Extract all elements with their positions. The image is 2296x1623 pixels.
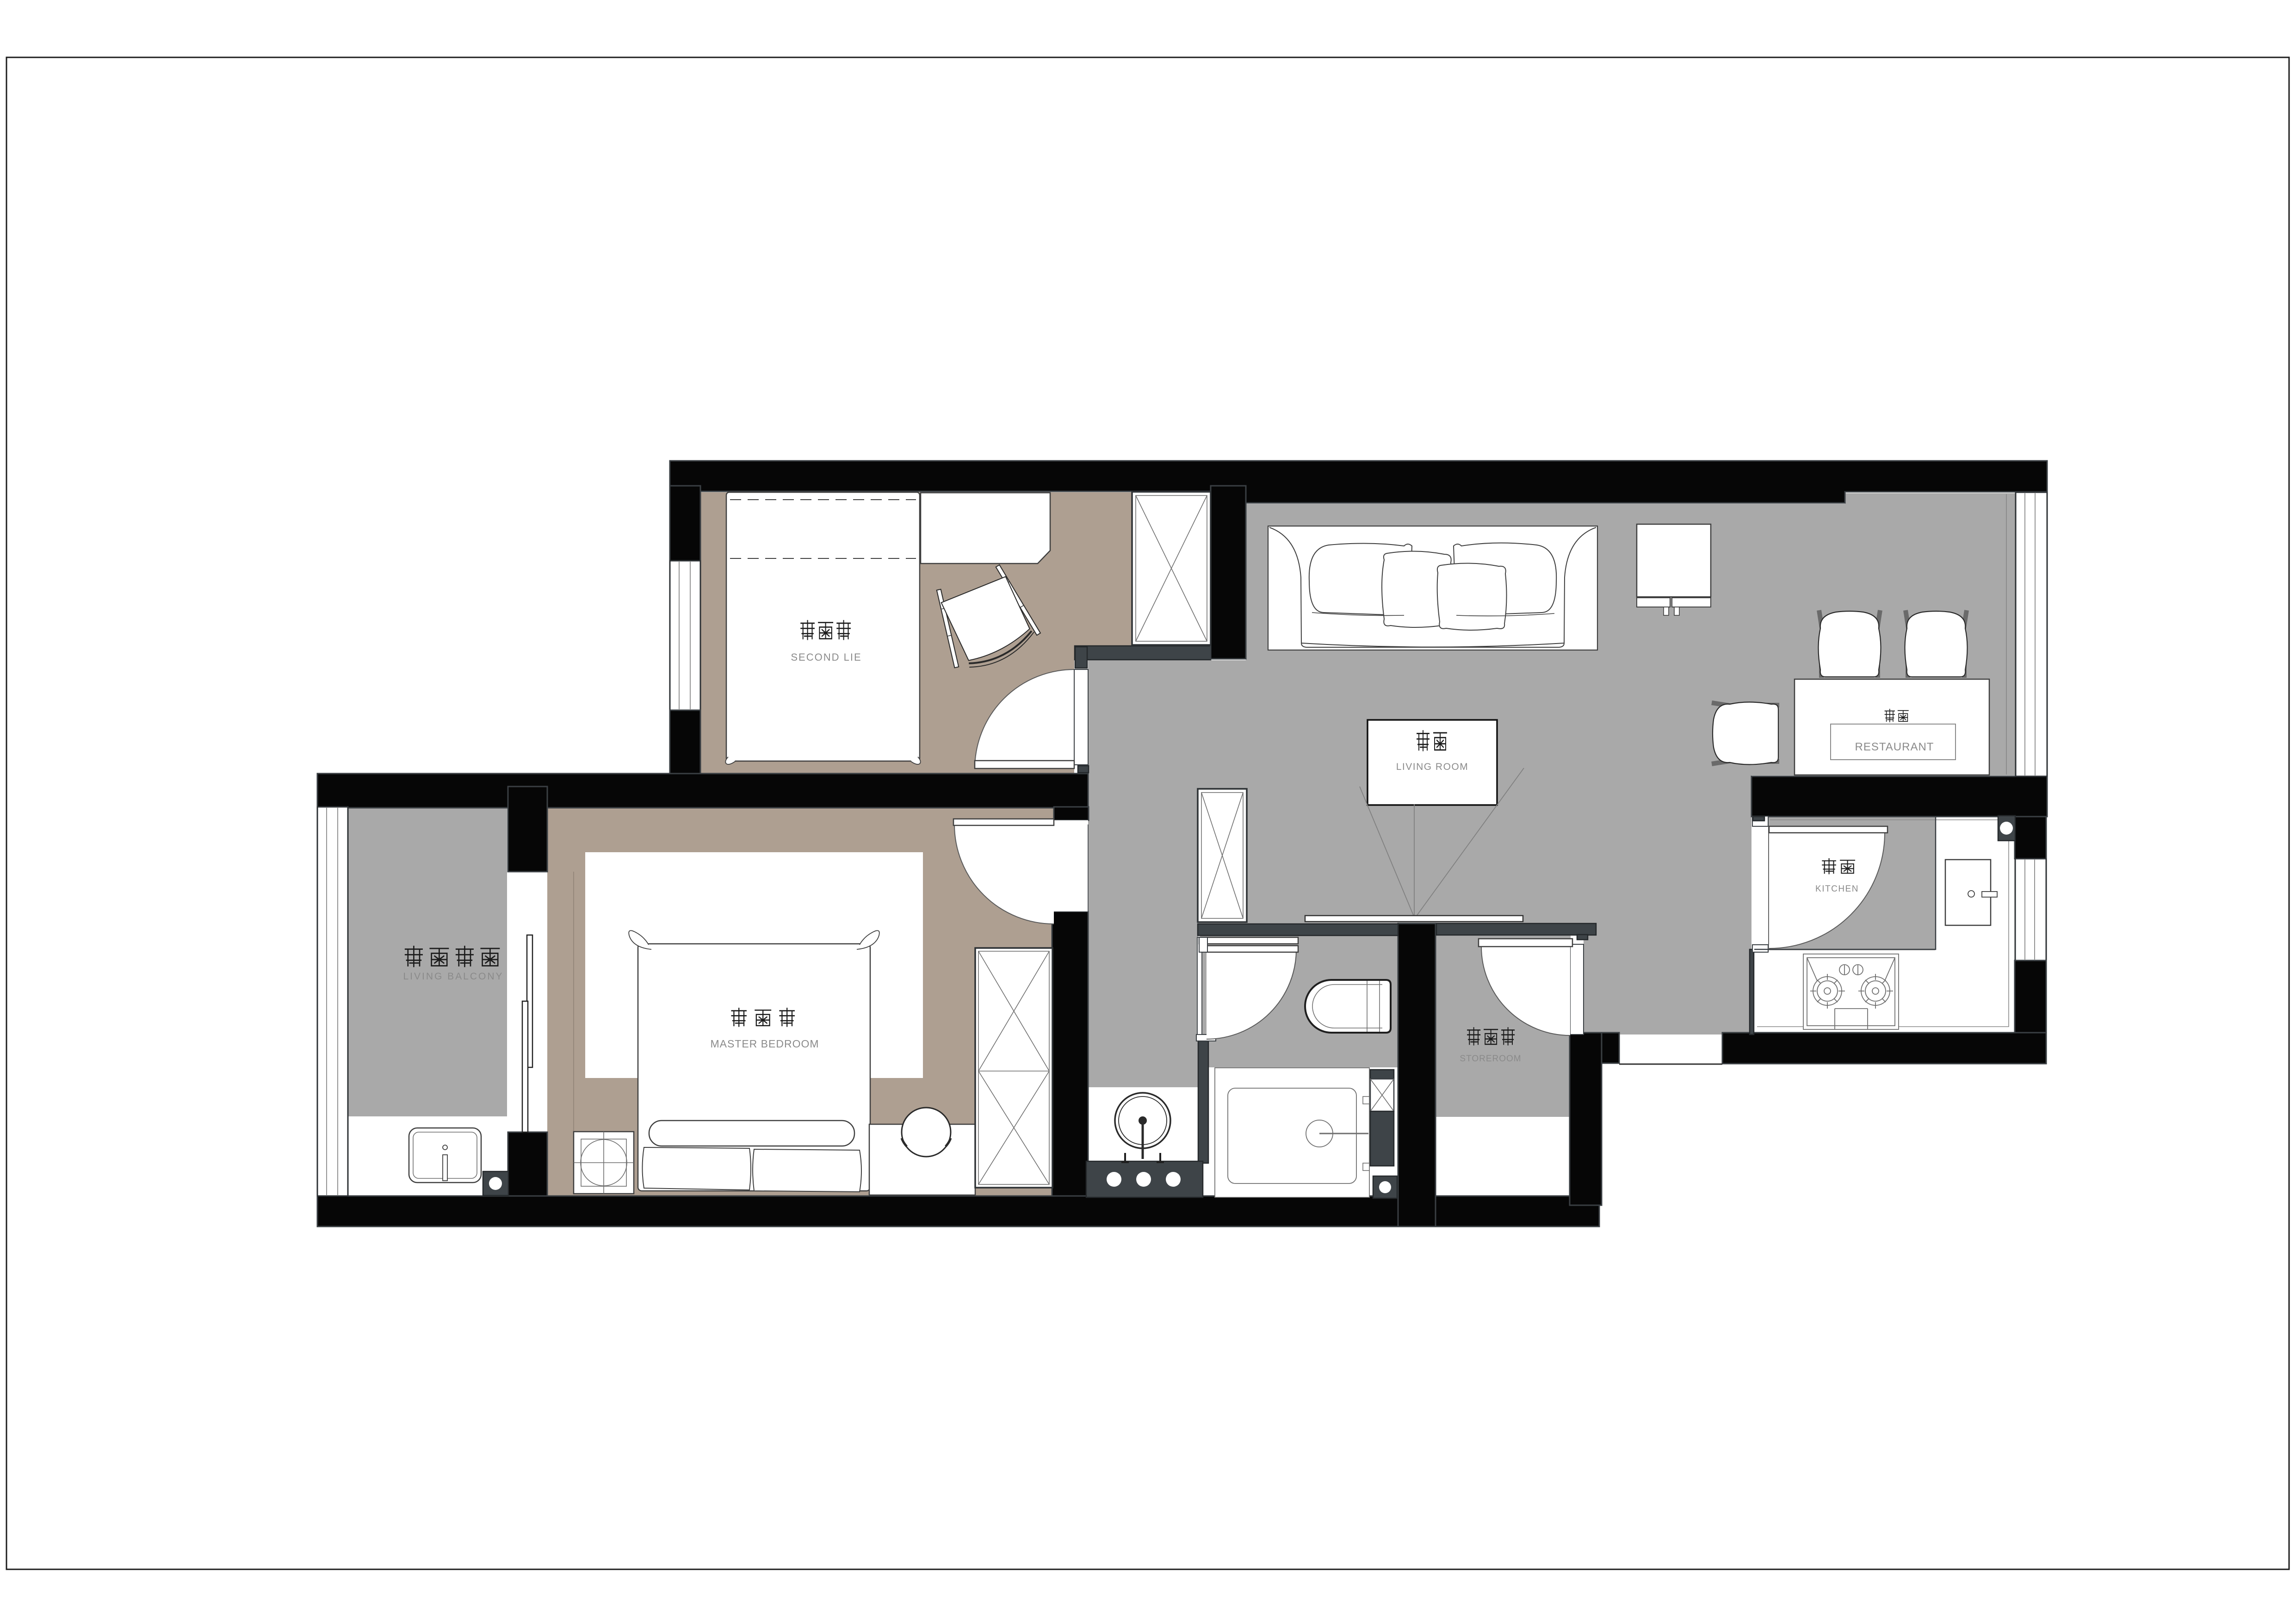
svg-text:LIVING ROOM: LIVING ROOM [1396, 762, 1469, 772]
svg-text:RESTAURANT: RESTAURANT [1855, 741, 1934, 753]
svg-text:MASTER BEDROOM: MASTER BEDROOM [710, 1038, 819, 1050]
svg-text:SECOND LIE: SECOND LIE [791, 651, 861, 663]
svg-text:LIVING BALCONY: LIVING BALCONY [403, 971, 503, 982]
svg-text:STOREROOM: STOREROOM [1460, 1054, 1521, 1064]
svg-text:KITCHEN: KITCHEN [1815, 884, 1859, 894]
